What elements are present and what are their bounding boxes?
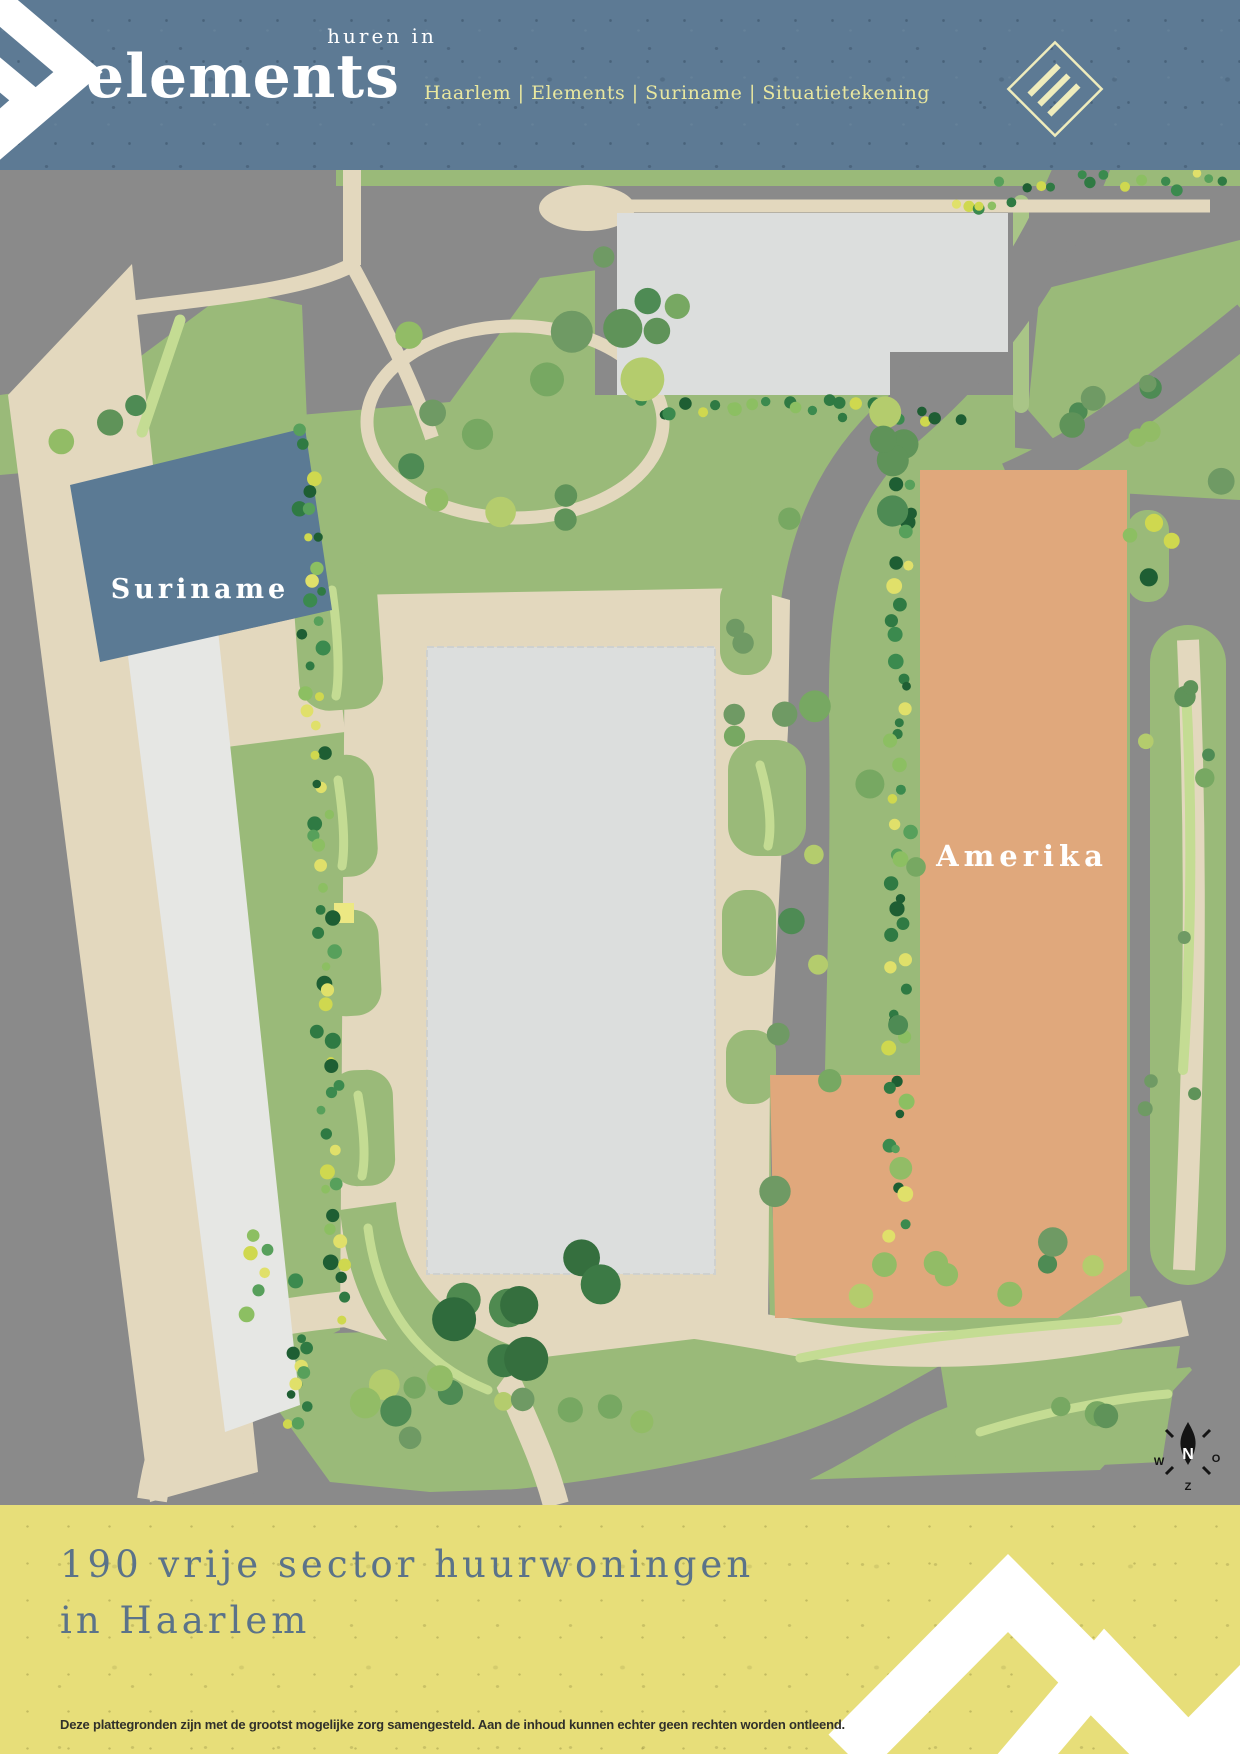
tree-icon bbox=[581, 1264, 621, 1304]
tree-icon bbox=[679, 397, 692, 410]
tree-icon bbox=[888, 794, 898, 804]
footer-headline-line1: 190 vrije sector huurwoningen bbox=[60, 1537, 754, 1593]
tree-icon bbox=[593, 246, 614, 267]
site-plan-map: Suriname Amerika N W O Z bbox=[0, 170, 1240, 1505]
tree-icon bbox=[886, 578, 902, 594]
tree-icon bbox=[869, 396, 901, 428]
tree-icon bbox=[310, 1025, 324, 1039]
tree-icon bbox=[318, 883, 328, 893]
footer: 190 vrije sector huurwoningen in Haarlem… bbox=[0, 1505, 1240, 1754]
tree-icon bbox=[1022, 183, 1031, 192]
tree-icon bbox=[635, 288, 661, 314]
tree-icon bbox=[997, 1282, 1022, 1307]
tree-icon bbox=[336, 1272, 347, 1283]
tree-icon bbox=[297, 438, 309, 450]
tree-icon bbox=[321, 983, 334, 996]
tree-icon bbox=[994, 177, 1004, 187]
compass-west: W bbox=[1154, 1456, 1165, 1468]
tree-icon bbox=[555, 484, 578, 507]
tree-icon bbox=[311, 751, 320, 760]
tree-icon bbox=[1120, 182, 1130, 192]
tree-icon bbox=[884, 928, 898, 942]
tree-icon bbox=[1218, 177, 1227, 186]
tree-icon bbox=[314, 533, 323, 542]
header: huren in elements Haarlem | Elements | S… bbox=[0, 0, 1240, 170]
tree-icon bbox=[896, 1110, 905, 1119]
tree-icon bbox=[320, 1164, 335, 1179]
tree-icon bbox=[889, 1157, 912, 1180]
tree-icon bbox=[318, 746, 332, 760]
tree-icon bbox=[310, 562, 323, 575]
tree-icon bbox=[494, 1392, 513, 1411]
tree-icon bbox=[903, 825, 918, 840]
tree-icon bbox=[888, 627, 903, 642]
tree-icon bbox=[504, 1337, 548, 1381]
tree-icon bbox=[500, 1286, 538, 1324]
tree-icon bbox=[778, 508, 800, 530]
tree-icon bbox=[247, 1229, 260, 1242]
tree-icon bbox=[511, 1388, 535, 1412]
tree-icon bbox=[317, 1106, 326, 1115]
tree-icon bbox=[905, 480, 915, 490]
tree-icon bbox=[380, 1395, 411, 1426]
tree-icon bbox=[724, 704, 745, 725]
tree-icon bbox=[884, 876, 898, 890]
tree-icon bbox=[893, 851, 909, 867]
tree-icon bbox=[899, 525, 913, 539]
tree-icon bbox=[306, 661, 315, 670]
elements-diamond-logo-icon bbox=[990, 32, 1120, 152]
tree-icon bbox=[287, 1347, 300, 1360]
tree-icon bbox=[312, 927, 324, 939]
tree-icon bbox=[903, 561, 913, 571]
tree-icon bbox=[333, 1234, 347, 1248]
tree-icon bbox=[896, 785, 906, 795]
tree-icon bbox=[337, 1316, 346, 1325]
tree-icon bbox=[326, 1087, 337, 1098]
compass-north: N bbox=[1182, 1446, 1194, 1463]
tree-icon bbox=[850, 397, 862, 409]
tree-icon bbox=[1036, 181, 1046, 191]
tree-icon bbox=[305, 574, 319, 588]
tree-icon bbox=[893, 598, 907, 612]
tree-icon bbox=[259, 1268, 270, 1279]
tree-icon bbox=[728, 402, 742, 416]
tree-icon bbox=[746, 398, 758, 410]
tree-icon bbox=[603, 309, 642, 348]
tree-icon bbox=[325, 910, 340, 925]
tree-icon bbox=[1204, 174, 1213, 183]
tree-icon bbox=[262, 1244, 274, 1256]
tree-icon bbox=[1129, 429, 1147, 447]
tree-icon bbox=[877, 495, 908, 526]
tree-icon bbox=[302, 1401, 313, 1412]
tree-icon bbox=[1139, 375, 1156, 392]
disclaimer-text: Deze plattegronden zijn met de grootst m… bbox=[60, 1717, 845, 1732]
tree-icon bbox=[350, 1388, 381, 1419]
tree-icon bbox=[301, 704, 314, 717]
tree-icon bbox=[326, 1209, 339, 1222]
tree-icon bbox=[485, 497, 516, 528]
tree-icon bbox=[125, 395, 146, 416]
tree-icon bbox=[726, 619, 744, 637]
tree-icon bbox=[297, 629, 308, 640]
tree-icon bbox=[849, 1284, 874, 1309]
tree-icon bbox=[630, 1410, 653, 1433]
tree-icon bbox=[239, 1307, 255, 1323]
tree-icon bbox=[322, 962, 330, 970]
tree-icon bbox=[897, 1186, 913, 1202]
tree-icon bbox=[767, 1023, 790, 1046]
tree-icon bbox=[892, 758, 907, 773]
tree-icon bbox=[319, 997, 333, 1011]
tree-icon bbox=[952, 200, 961, 209]
tree-icon bbox=[297, 1334, 306, 1343]
tree-icon bbox=[884, 1082, 896, 1094]
tree-icon bbox=[1059, 412, 1085, 438]
tree-icon bbox=[956, 414, 967, 425]
tree-icon bbox=[325, 1033, 341, 1049]
tree-icon bbox=[427, 1365, 453, 1391]
tree-icon bbox=[1038, 1254, 1057, 1273]
tree-icon bbox=[1145, 514, 1163, 532]
tree-icon bbox=[1144, 1074, 1158, 1088]
tree-icon bbox=[790, 402, 802, 414]
tree-icon bbox=[899, 1094, 915, 1110]
tree-icon bbox=[872, 1252, 897, 1277]
tree-icon bbox=[1082, 1255, 1103, 1276]
tree-icon bbox=[395, 322, 422, 349]
tree-icon bbox=[327, 944, 342, 959]
tree-icon bbox=[298, 686, 312, 700]
tree-icon bbox=[761, 397, 770, 406]
tree-icon bbox=[838, 413, 847, 422]
tree-icon bbox=[906, 857, 926, 877]
compass-south: Z bbox=[1185, 1481, 1192, 1493]
tree-icon bbox=[303, 593, 317, 607]
tree-icon bbox=[621, 357, 665, 401]
tree-icon bbox=[724, 726, 745, 747]
tree-icon bbox=[1099, 170, 1109, 180]
tree-icon bbox=[554, 508, 576, 530]
tree-icon bbox=[304, 533, 312, 541]
footer-headline: 190 vrije sector huurwoningen in Haarlem bbox=[60, 1537, 754, 1648]
tree-icon bbox=[1140, 568, 1158, 586]
tree-icon bbox=[311, 721, 321, 731]
tree-icon bbox=[698, 407, 708, 417]
tree-icon bbox=[759, 1176, 790, 1207]
tree-icon bbox=[888, 1015, 908, 1035]
tree-icon bbox=[338, 1259, 351, 1272]
tree-icon bbox=[283, 1419, 293, 1429]
tree-icon bbox=[1161, 177, 1170, 186]
tree-icon bbox=[1138, 734, 1154, 750]
tree-icon bbox=[324, 1224, 335, 1235]
tree-icon bbox=[963, 201, 974, 212]
tree-icon bbox=[1123, 528, 1138, 543]
tree-icon bbox=[644, 318, 671, 345]
tree-icon bbox=[895, 718, 904, 727]
tree-icon bbox=[884, 961, 896, 973]
tree-icon bbox=[323, 1255, 339, 1271]
tree-icon bbox=[297, 1366, 310, 1379]
tree-icon bbox=[888, 654, 904, 670]
tree-icon bbox=[899, 953, 912, 966]
label-suriname: Suriname bbox=[111, 574, 289, 605]
tree-icon bbox=[1171, 184, 1183, 196]
compass-east: O bbox=[1212, 1453, 1221, 1465]
tree-icon bbox=[665, 294, 690, 319]
tree-icon bbox=[1051, 1397, 1070, 1416]
tree-icon bbox=[778, 908, 804, 934]
tree-icon bbox=[889, 556, 903, 570]
tree-icon bbox=[243, 1246, 257, 1260]
tree-icon bbox=[462, 419, 493, 450]
tree-icon bbox=[316, 641, 331, 656]
tree-icon bbox=[292, 1417, 304, 1429]
tree-icon bbox=[289, 1378, 302, 1391]
tree-icon bbox=[929, 412, 941, 424]
tree-icon bbox=[325, 810, 334, 819]
tree-icon bbox=[901, 1219, 911, 1229]
tree-icon bbox=[399, 1427, 422, 1450]
tree-icon bbox=[1046, 183, 1055, 192]
tree-icon bbox=[662, 407, 675, 420]
tree-icon bbox=[301, 1342, 313, 1354]
tree-icon bbox=[889, 901, 904, 916]
tree-icon bbox=[901, 984, 912, 995]
tree-icon bbox=[317, 587, 326, 596]
tree-icon bbox=[818, 1069, 841, 1092]
tree-icon bbox=[881, 1041, 896, 1056]
tree-icon bbox=[304, 485, 317, 498]
tree-icon bbox=[287, 1390, 296, 1399]
tree-icon bbox=[97, 409, 123, 435]
tree-icon bbox=[316, 905, 326, 915]
tree-icon bbox=[339, 1292, 350, 1303]
tree-icon bbox=[1078, 170, 1087, 179]
tree-icon bbox=[49, 429, 75, 455]
tree-icon bbox=[1084, 177, 1095, 188]
tree-icon bbox=[321, 1185, 330, 1194]
tree-icon bbox=[1188, 1087, 1201, 1100]
tree-icon bbox=[974, 202, 983, 211]
tree-icon bbox=[917, 407, 927, 417]
tree-icon bbox=[897, 917, 910, 930]
tree-icon bbox=[558, 1397, 583, 1422]
tree-icon bbox=[404, 1377, 426, 1399]
tree-icon bbox=[324, 1059, 338, 1073]
tree-icon bbox=[924, 1251, 948, 1275]
tree-icon bbox=[307, 816, 322, 831]
tree-icon bbox=[804, 845, 824, 865]
tree-icon bbox=[598, 1394, 622, 1418]
tree-icon bbox=[314, 859, 327, 872]
tree-icon bbox=[313, 780, 322, 789]
tree-icon bbox=[288, 1273, 303, 1288]
tree-icon bbox=[772, 702, 797, 727]
tree-icon bbox=[988, 202, 997, 211]
tree-icon bbox=[902, 682, 911, 691]
tree-icon bbox=[882, 1230, 895, 1243]
tree-icon bbox=[551, 311, 593, 353]
tree-icon bbox=[1195, 768, 1214, 787]
tree-icon bbox=[303, 503, 315, 515]
tree-icon bbox=[1136, 175, 1147, 186]
tree-icon bbox=[710, 400, 720, 410]
tree-icon bbox=[1094, 1404, 1119, 1429]
tree-icon bbox=[432, 1297, 476, 1341]
tree-icon bbox=[855, 770, 884, 799]
tree-icon bbox=[1081, 386, 1106, 411]
tree-icon bbox=[891, 1145, 899, 1153]
tree-icon bbox=[1007, 198, 1017, 208]
tree-icon bbox=[1202, 749, 1215, 762]
tree-icon bbox=[899, 702, 912, 715]
tree-icon bbox=[252, 1284, 264, 1296]
tree-icon bbox=[870, 426, 897, 453]
tree-icon bbox=[330, 1178, 343, 1191]
tree-icon bbox=[419, 400, 446, 427]
tree-icon bbox=[530, 362, 564, 396]
tree-icon bbox=[1208, 468, 1235, 495]
tree-icon bbox=[889, 819, 900, 830]
tree-icon bbox=[314, 616, 324, 626]
situatietekening-poster: huren in elements Haarlem | Elements | S… bbox=[0, 0, 1240, 1754]
footer-headline-line2: in Haarlem bbox=[60, 1593, 754, 1649]
tree-icon bbox=[1138, 1101, 1153, 1116]
tree-icon bbox=[1183, 680, 1198, 695]
tree-icon bbox=[312, 839, 325, 852]
tree-icon bbox=[425, 488, 448, 511]
tree-icon bbox=[808, 955, 828, 975]
tree-icon bbox=[889, 477, 903, 491]
tree-icon bbox=[885, 614, 898, 627]
tree-icon bbox=[398, 453, 424, 479]
tree-icon bbox=[1164, 533, 1180, 549]
tree-icon bbox=[321, 1128, 332, 1139]
tree-icon bbox=[808, 406, 817, 415]
brand-name: elements bbox=[86, 42, 400, 112]
tree-icon bbox=[1178, 931, 1191, 944]
tree-icon bbox=[833, 397, 845, 409]
tree-icon bbox=[883, 734, 897, 748]
tree-icon bbox=[799, 690, 831, 722]
tree-icon bbox=[1038, 1227, 1068, 1257]
central-building bbox=[427, 647, 715, 1274]
tree-icon bbox=[315, 692, 324, 701]
tree-icon bbox=[330, 1145, 341, 1156]
tree-icon bbox=[307, 471, 322, 486]
breadcrumb: Haarlem | Elements | Suriname | Situatie… bbox=[424, 82, 930, 104]
tree-icon bbox=[293, 424, 306, 437]
label-amerika: Amerika bbox=[935, 839, 1108, 873]
